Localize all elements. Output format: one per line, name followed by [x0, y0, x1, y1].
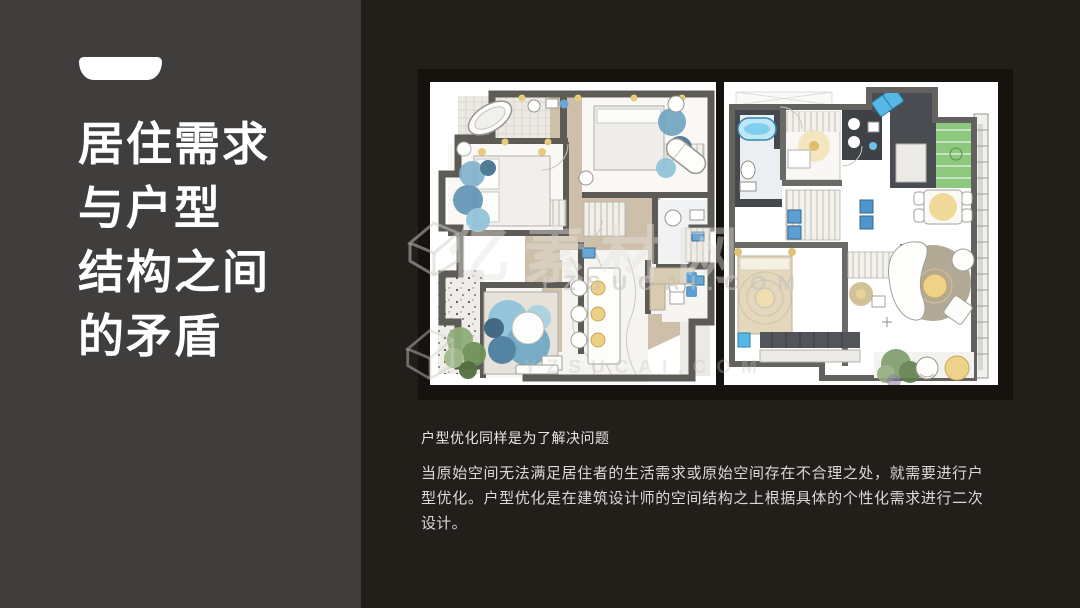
floor-plan-image-right	[724, 82, 998, 385]
floor-plan-gallery: 亿素材网 YZSUCAI.COM YZSUCAI.COM	[418, 69, 1013, 400]
title-line-3: 结构之间	[78, 240, 348, 304]
section-title-panel: 居住需求 与户型 结构之间 的矛盾	[0, 0, 361, 608]
section-one-bar-icon	[79, 57, 162, 80]
closet-outline-top	[736, 92, 832, 105]
bathroom-center	[842, 110, 882, 160]
presentation-slide: 居住需求 与户型 结构之间 的矛盾	[0, 0, 1080, 608]
floor-plan-left-drawing	[430, 82, 716, 385]
living-rug	[889, 242, 974, 325]
bed-left	[453, 142, 550, 232]
bedroom-top-center	[784, 112, 840, 180]
floor-plan-right-drawing	[724, 82, 998, 385]
title-line-1: 居住需求	[78, 112, 348, 176]
caption-body: 当原始空间无法满足居住者的生活需求或原始空间存在不合理之处，就需要进行户型优化。…	[421, 461, 983, 536]
caption-heading: 户型优化同样是为了解决问题	[421, 428, 610, 448]
bed-bottom	[484, 292, 562, 374]
floor-plan-image-left	[430, 82, 716, 385]
title-line-4: 的矛盾	[78, 304, 348, 368]
bathroom-left	[732, 107, 782, 207]
title-line-2: 与户型	[78, 176, 348, 240]
bed-bottom-left	[734, 248, 796, 334]
page-title: 居住需求 与户型 结构之间 的矛盾	[78, 112, 348, 368]
balcony-green	[936, 120, 976, 188]
